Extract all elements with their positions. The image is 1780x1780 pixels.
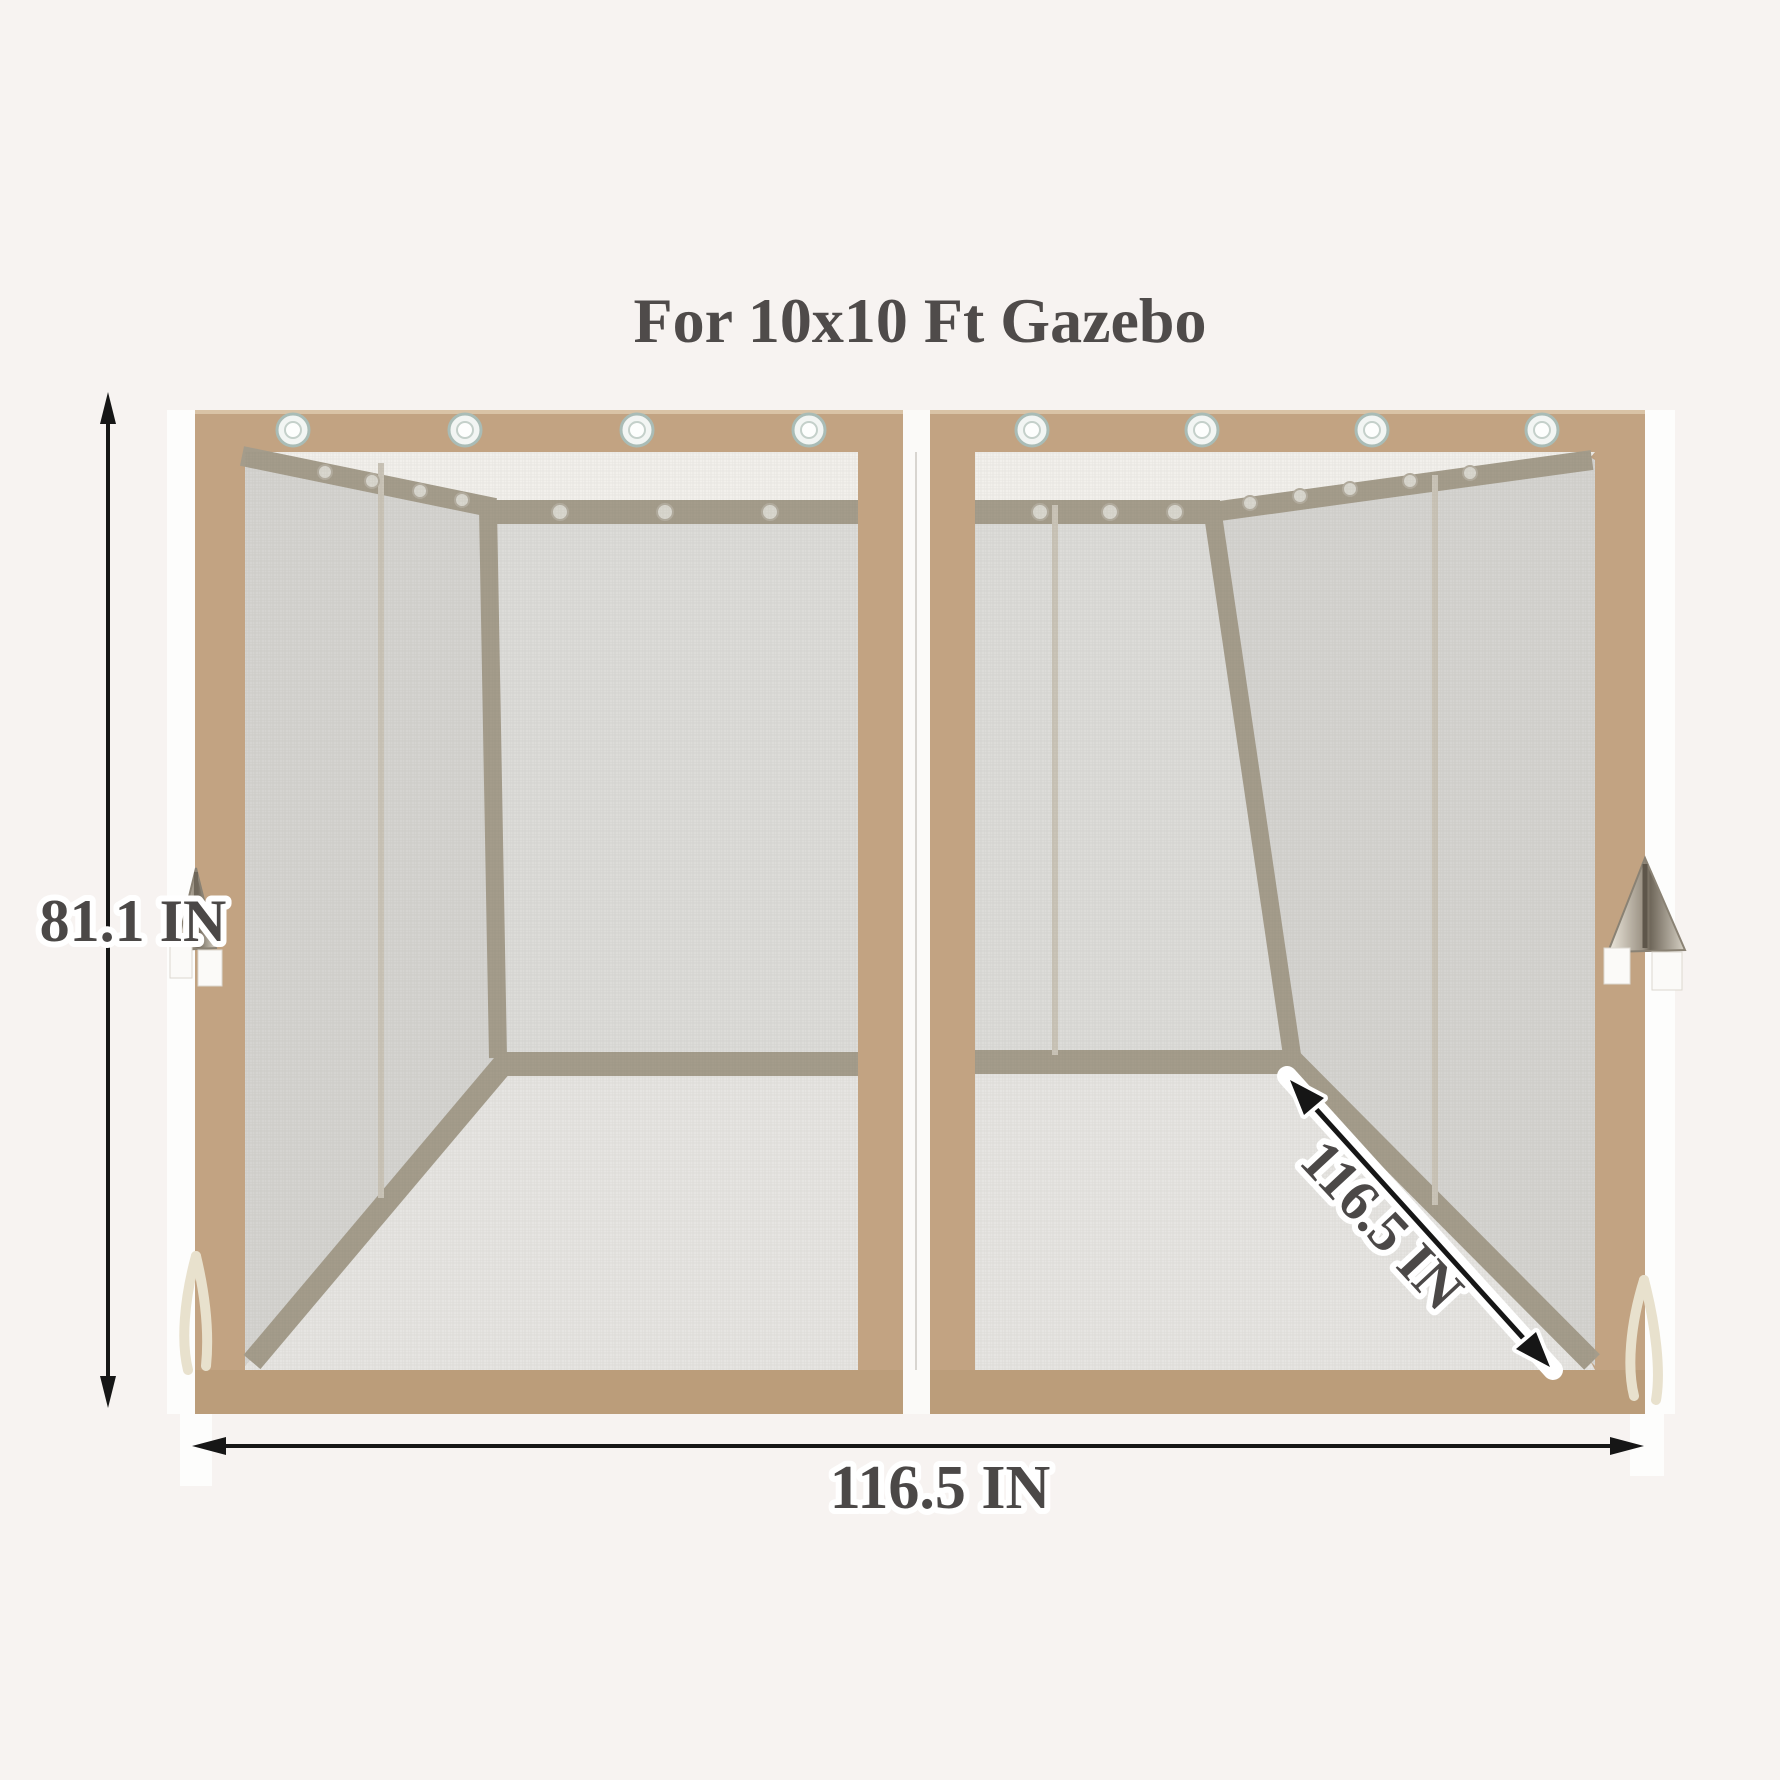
height-dimension-label: 81.1 IN (40, 888, 227, 954)
left-panel-mesh-texture (245, 452, 858, 1370)
grommet (1186, 414, 1218, 446)
grommet (1526, 414, 1558, 446)
grommet (1356, 414, 1388, 446)
diagram-title: For 10x10 Ft Gazebo (634, 285, 1207, 356)
grommet (793, 414, 825, 446)
grommet (449, 414, 481, 446)
right-panel-frame-bottom (930, 1370, 1645, 1414)
width-dimension-label: 116.5 IN (830, 1454, 1050, 1522)
grommet (277, 414, 309, 446)
left-panel-frame-bottom (195, 1370, 903, 1414)
grommet (1016, 414, 1048, 446)
right-panel (930, 410, 1645, 1414)
right-panel-mesh-texture (975, 452, 1595, 1370)
left-panel (195, 410, 903, 1414)
grommet (621, 414, 653, 446)
left-panel-frame-top-highlight (195, 410, 903, 414)
gazebo-netting-illustration: For 10x10 Ft Gazebo (0, 0, 1780, 1780)
product-dimension-diagram: For 10x10 Ft Gazebo (0, 0, 1780, 1780)
